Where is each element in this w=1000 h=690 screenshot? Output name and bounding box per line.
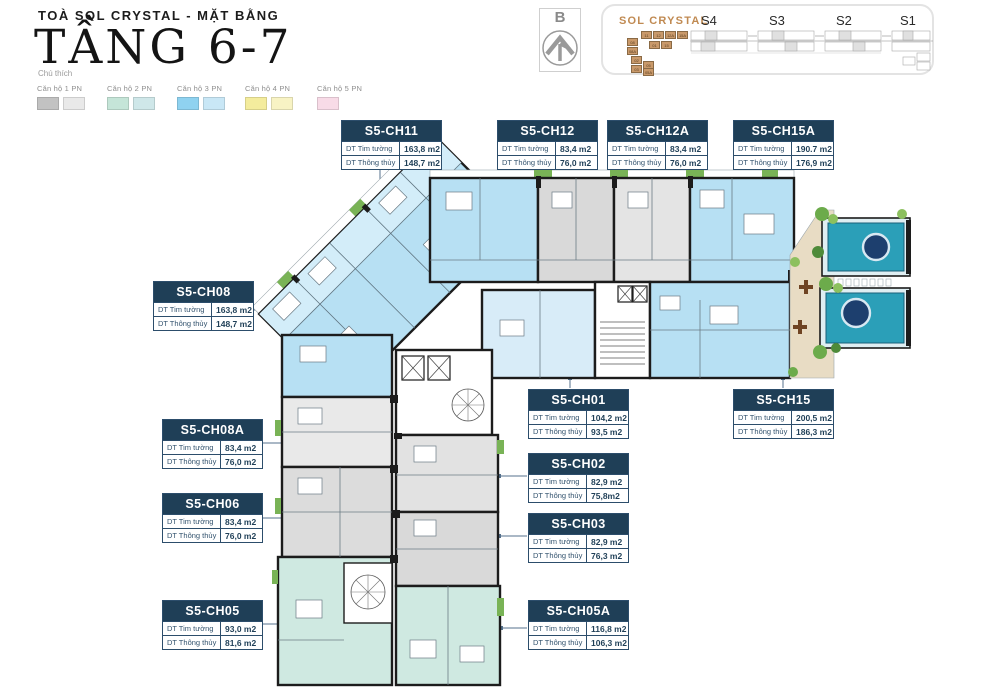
unit-card-s5-ch08: S5-CH08 DT Tim tường163,8 m2 DT Thông th… (153, 281, 254, 331)
unit-name: S5-CH12A (608, 121, 707, 141)
unit-name: S5-CH03 (529, 514, 628, 534)
area-value: 176,9 m2 (792, 158, 833, 168)
area-value: 76,3 m2 (587, 551, 628, 561)
unit-card-s5-ch12a: S5-CH12A DT Tim tường83,4 m2 DT Thông th… (607, 120, 708, 170)
unit-card-s5-ch06: S5-CH06 DT Tim tường83,4 m2 DT Thông thủ… (162, 493, 263, 543)
area-label: DT Thông thủy (163, 529, 221, 542)
unit-name: S5-CH11 (342, 121, 441, 141)
area-label: DT Tim tường (529, 535, 587, 548)
area-label: DT Tim tường (529, 622, 587, 635)
area-label: DT Thông thủy (529, 549, 587, 562)
area-value: 83,4 m2 (556, 144, 597, 154)
area-label: DT Tim tường (734, 142, 792, 155)
floor-plan (0, 0, 1000, 690)
unit-card-s5-ch01: S5-CH01 DT Tim tường104,2 m2 DT Thông th… (528, 389, 629, 439)
area-label: DT Thông thủy (608, 156, 666, 169)
area-value: 81,6 m2 (221, 638, 262, 648)
area-value: 93,0 m2 (221, 624, 262, 634)
unit-name: S5-CH01 (529, 390, 628, 410)
area-value: 76,0 m2 (221, 531, 262, 541)
unit-name: S5-CH15A (734, 121, 833, 141)
plan-unit-ch02 (396, 435, 498, 512)
area-label: DT Thông thủy (163, 636, 221, 649)
unit-name: S5-CH05A (529, 601, 628, 621)
area-label: DT Tim tường (163, 441, 221, 454)
area-label: DT Thông thủy (734, 425, 792, 438)
area-value: 76,0 m2 (221, 457, 262, 467)
area-label: DT Tim tường (163, 515, 221, 528)
unit-card-s5-ch03: S5-CH03 DT Tim tường82,9 m2 DT Thông thủ… (528, 513, 629, 563)
area-label: DT Thông thủy (163, 455, 221, 468)
area-value: 75,8m2 (587, 491, 628, 501)
area-label: DT Thông thủy (154, 317, 212, 330)
page: TOÀ SOL CRYSTAL - MẶT BẰNG TẦNG 6-7 Chú … (0, 0, 1000, 690)
area-value: 190.7 m2 (792, 144, 833, 154)
unit-card-s5-ch02: S5-CH02 DT Tim tường82,9 m2 DT Thông thủ… (528, 453, 629, 503)
area-value: 83,4 m2 (666, 144, 707, 154)
unit-name: S5-CH05 (163, 601, 262, 621)
plan-band-vertical (272, 335, 504, 685)
area-label: DT Tim tường (154, 303, 212, 316)
unit-card-s5-ch15: S5-CH15 DT Tim tường200,5 m2 DT Thông th… (733, 389, 834, 439)
area-label: DT Thông thủy (529, 425, 587, 438)
area-value: 148,7 m2 (400, 158, 441, 168)
unit-name: S5-CH02 (529, 454, 628, 474)
area-value: 83,4 m2 (221, 443, 262, 453)
jacuzzi-circle (863, 234, 889, 260)
area-value: 82,9 m2 (587, 537, 628, 547)
area-label: DT Tim tường (498, 142, 556, 155)
area-label: DT Thông thủy (529, 489, 587, 502)
area-label: DT Tim tường (529, 411, 587, 424)
area-value: 148,7 m2 (212, 319, 253, 329)
unit-name: S5-CH06 (163, 494, 262, 514)
area-label: DT Thông thủy (498, 156, 556, 169)
unit-name: S5-CH15 (734, 390, 833, 410)
area-label: DT Thông thủy (734, 156, 792, 169)
area-label: DT Tim tường (734, 411, 792, 424)
area-label: DT Thông thủy (342, 156, 400, 169)
area-value: 163,8 m2 (212, 305, 253, 315)
plan-band-top (430, 169, 796, 282)
area-value: 104,2 m2 (587, 413, 628, 423)
area-label: DT Tim tường (608, 142, 666, 155)
unit-card-s5-ch05a: S5-CH05A DT Tim tường116,8 m2 DT Thông t… (528, 600, 629, 650)
area-value: 76,0 m2 (666, 158, 707, 168)
unit-card-s5-ch12: S5-CH12 DT Tim tường83,4 m2 DT Thông thủ… (497, 120, 598, 170)
area-label: DT Tim tường (163, 622, 221, 635)
area-label: DT Tim tường (529, 475, 587, 488)
plan-pool-area (788, 207, 911, 378)
unit-card-s5-ch05: S5-CH05 DT Tim tường93,0 m2 DT Thông thủ… (162, 600, 263, 650)
pool-terrace-1 (822, 218, 910, 276)
unit-name: S5-CH12 (498, 121, 597, 141)
area-value: 82,9 m2 (587, 477, 628, 487)
area-value: 200,5 m2 (792, 413, 833, 423)
unit-name: S5-CH08 (154, 282, 253, 302)
area-value: 93,5 m2 (587, 427, 628, 437)
unit-card-s5-ch15a: S5-CH15A DT Tim tường190.7 m2 DT Thông t… (733, 120, 834, 170)
plan-unit-ch08-lower (282, 335, 392, 397)
plan-unit-ch01 (482, 290, 595, 378)
area-value: 76,0 m2 (556, 158, 597, 168)
area-value: 116,8 m2 (587, 624, 628, 634)
unit-name: S5-CH08A (163, 420, 262, 440)
jacuzzi-circle (842, 299, 870, 327)
pool-terrace-2 (820, 288, 910, 348)
area-value: 163,8 m2 (400, 144, 441, 154)
area-label: DT Tim tường (342, 142, 400, 155)
plan-band-middle (482, 282, 790, 378)
area-value: 83,4 m2 (221, 517, 262, 527)
unit-card-s5-ch08a: S5-CH08A DT Tim tường83,4 m2 DT Thông th… (162, 419, 263, 469)
area-value: 106,3 m2 (587, 638, 628, 648)
area-label: DT Thông thủy (529, 636, 587, 649)
unit-card-s5-ch11: S5-CH11 DT Tim tường163,8 m2 DT Thông th… (341, 120, 442, 170)
area-value: 186,3 m2 (792, 427, 833, 437)
